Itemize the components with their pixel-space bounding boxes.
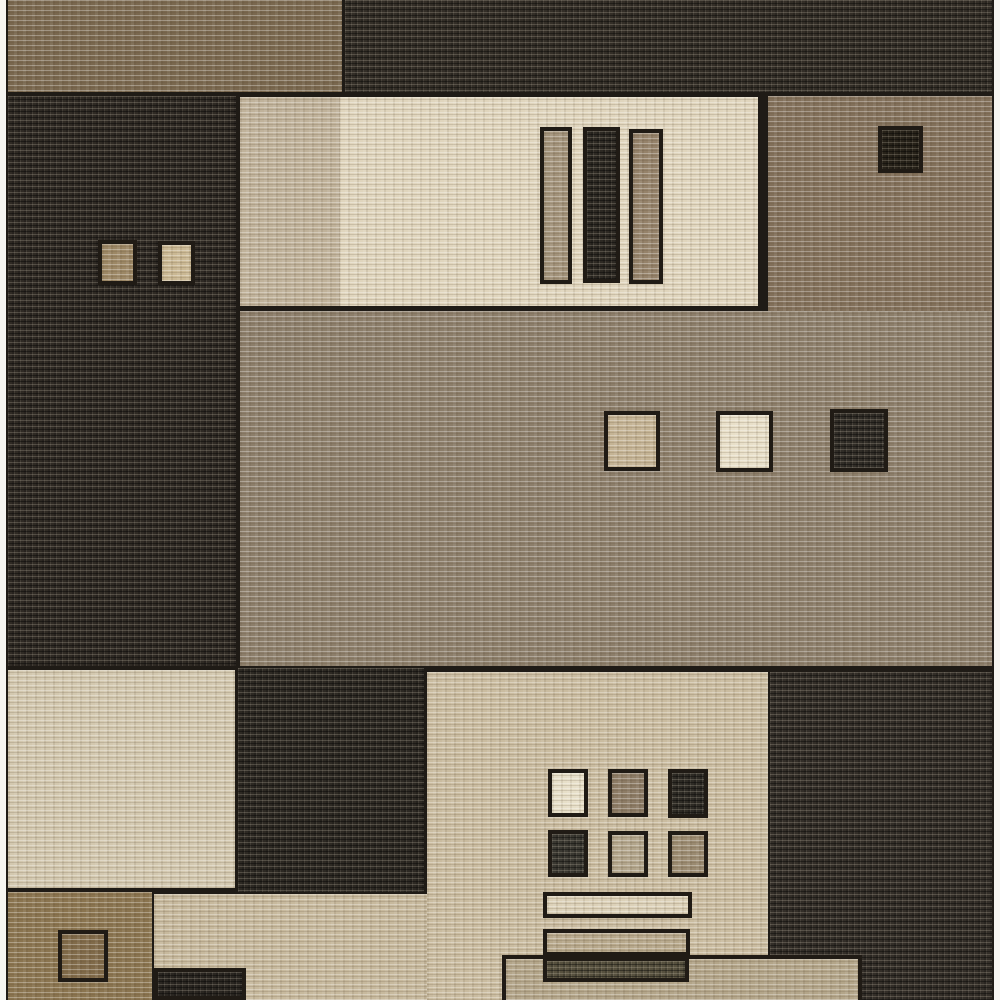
grid-square-cream-r1c1 [548, 769, 588, 817]
block-taupe-middle-band [240, 311, 992, 666]
shade-cream-top-left-edge [240, 97, 340, 306]
grid-square-taupe-r2c3 [668, 831, 708, 877]
square-charcoal-middle [830, 409, 888, 472]
bar-darktaupe-horizontal [543, 957, 689, 982]
square-beige-in-left-block [158, 241, 195, 285]
square-charcoal-top-right [878, 126, 923, 173]
square-brown-bottom-left [58, 930, 108, 982]
bar-cream-horizontal [543, 892, 692, 918]
block-charcoal-left [8, 96, 236, 666]
block-charcoal-small-bottom [154, 968, 246, 1000]
grid-square-brown-r1c2 [608, 769, 648, 817]
block-charcoal-bottom-right [770, 672, 992, 1000]
bar-beige-horizontal [543, 929, 690, 956]
square-brown-in-left-block [98, 240, 137, 285]
bar-taupe-vertical [540, 127, 572, 284]
block-cream-bottom-left [8, 670, 235, 888]
square-cream-middle [716, 411, 773, 472]
square-beige-middle [604, 411, 660, 471]
block-brown-top-left [8, 0, 342, 92]
grid-square-charcoal-r1c3 [668, 769, 708, 818]
bar-brown-vertical [629, 129, 663, 284]
bar-charcoal-vertical [583, 127, 620, 283]
block-charcoal-top-band [345, 0, 992, 92]
grid-square-charcoal-r2c1 [548, 830, 588, 877]
rug-photo [0, 0, 1000, 1000]
grid-square-beige-r2c2 [608, 831, 648, 877]
block-charcoal-bottom-midleft [238, 668, 424, 892]
